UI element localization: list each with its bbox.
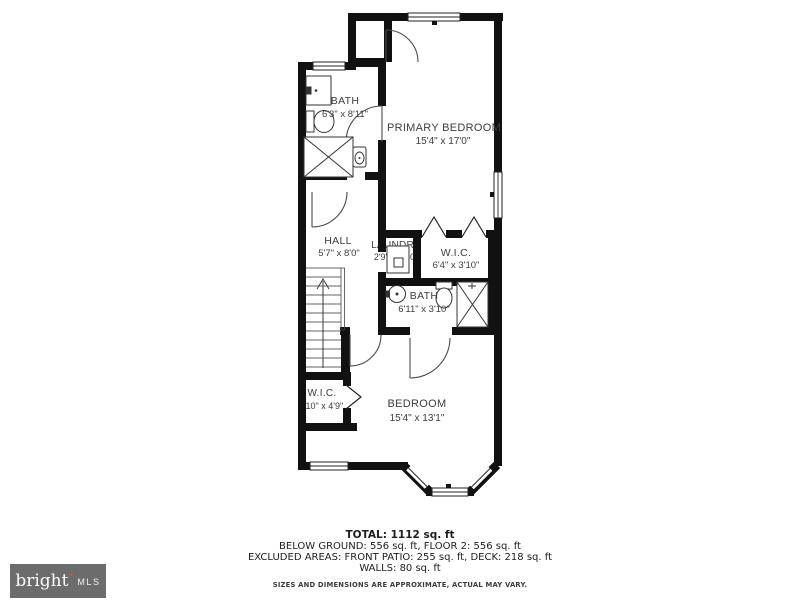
room-label-wic-lower: W.I.C. [307,388,336,399]
bifold-icon [422,217,446,237]
summary-below-ground: BELOW GROUND: 556 sq. ft, FLOOR 2: 556 s… [0,541,800,552]
door-bedroom-left [350,335,381,366]
summary-disclaimer: SIZES AND DIMENSIONS ARE APPROXIMATE, AC… [0,581,800,589]
door-hall [312,192,347,227]
summary-walls: WALLS: 80 sq. ft [0,563,800,574]
area-summary: TOTAL: 1112 sq. ft BELOW GROUND: 556 sq.… [0,529,800,589]
window-bottom-left [310,462,348,470]
window-top [408,13,460,21]
staircase [306,268,345,368]
room-dims-bath-middle: 6'11" x 3'10" [398,304,449,315]
toilet-tank [306,111,314,132]
room-dims-hall: 5'7" x 8'0" [318,248,360,259]
room-label-primary-bedroom: PRIMARY BEDROOM [387,122,501,134]
door-bedroom-right [410,338,450,378]
logo-mls-text: MLS [77,577,100,587]
summary-excluded-areas: EXCLUDED AREAS: FRONT PATIO: 255 sq. ft,… [0,552,800,563]
shower [457,282,488,327]
room-label-bath-upper: BATH [331,95,359,107]
window-bath-upper [313,62,345,70]
floorplan-page: LAUNDRY 2'9" x 3'10" 3'10" x 4'9" [0,0,800,600]
room-label-bedroom: BEDROOM [388,398,447,410]
bifold-icon [462,217,486,237]
room-dims-bath-upper: 6'3" x 8'11" [322,109,368,120]
room-label-hall: HALL [324,235,351,247]
room-dims-primary-bedroom: 15'4" x 17'0" [416,136,471,147]
room-label-wic-middle: W.I.C. [441,247,471,259]
room-dims-wic-middle: 6'4" x 3'10" [433,260,480,271]
bright-mls-logo: bright ✶ MLS [10,564,106,598]
fixtures-bath-upper [304,76,366,177]
window-bay-bottom [432,488,468,496]
room-dims-bedroom: 15'4" x 13'1" [390,413,445,424]
bifold-icon [346,385,361,409]
summary-total: TOTAL: 1112 sq. ft [0,529,800,541]
pedestal-sink [353,147,366,167]
shower [304,137,353,177]
logo-brand-text: bright [15,573,68,590]
room-label-bath-middle: BATH [410,290,438,302]
stairs-up-arrow-icon [317,279,329,368]
logo-star-icon: ✶ [68,571,74,579]
window-right [494,172,502,218]
laundry-appliance [387,246,409,273]
floor-plan-drawing: LAUNDRY 2'9" x 3'10" 3'10" x 4'9" [0,0,800,600]
